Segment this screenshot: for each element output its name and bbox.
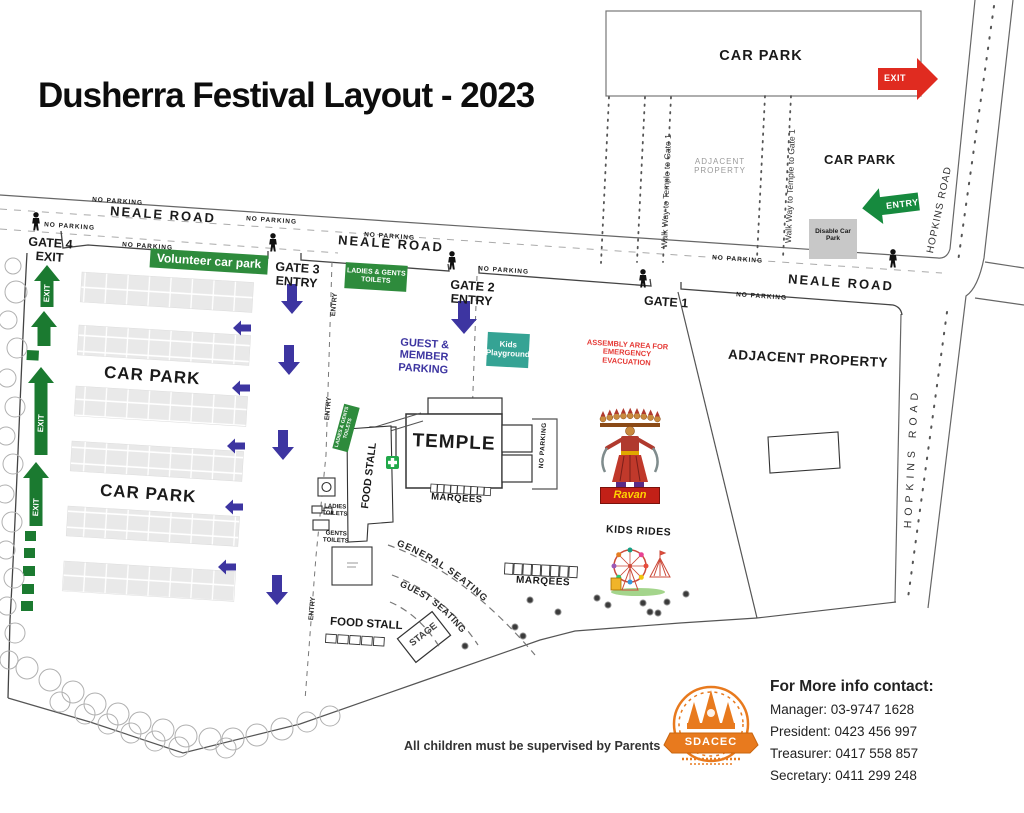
contact-heading: For More info contact:	[770, 678, 934, 695]
carpark-rows	[62, 272, 254, 601]
sdacec-logo-text: SDACEC	[676, 736, 746, 748]
kids-playground-box: Kids Playground	[486, 332, 530, 368]
contact-manager: Manager: 03-9747 1628	[770, 702, 914, 717]
exit-arrow-label: EXIT	[884, 73, 906, 83]
exit-arrows-green	[21, 265, 60, 611]
gate1-label: GATE 1	[644, 293, 689, 310]
children-notice: All children must be supervised by Paren…	[404, 739, 660, 753]
contact-president: President: 0423 456 997	[770, 724, 917, 739]
exit-arrow3-label: EXIT	[37, 414, 47, 432]
ravan-illustration	[600, 408, 660, 487]
gate4-label: GATE 4 EXIT	[19, 234, 81, 266]
festival-layout-map: GENERAL SEATING GUEST SEATING	[0, 0, 1024, 813]
temple-label: TEMPLE	[408, 430, 501, 455]
foodstall-row	[325, 634, 384, 646]
gate2-label: GATE 2 ENTRY	[442, 277, 502, 309]
top-carpark-label-2: CAR PARK	[824, 153, 896, 168]
adjacent-property-gray-label: ADJACENT PROPERTY	[688, 158, 752, 176]
exit-arrow4-label: EXIT	[32, 498, 42, 516]
page-title: Dusherra Festival Layout - 2023	[38, 76, 534, 115]
ravan-label: Ravan	[613, 489, 646, 501]
walkway-dotted-lines	[601, 96, 791, 263]
svg-text:GENERAL SEATING: GENERAL SEATING	[395, 538, 490, 604]
small-trees-dots	[462, 591, 689, 649]
gents-toilets-label: GENTS TOILETS	[316, 530, 357, 546]
exit-arrow1-label: EXIT	[43, 284, 53, 302]
contact-secretary: Secretary: 0411 299 248	[770, 768, 917, 783]
guest-member-parking-label: GUEST & MEMBER PARKING	[377, 335, 471, 377]
ravan-banner: Ravan	[600, 487, 660, 504]
general-seating-label: GENERAL SEATING	[395, 538, 490, 604]
ladies-gents-toilets-banner: LADIES & GENTS TOILETS	[344, 262, 407, 292]
top-carpark-label: CAR PARK	[706, 48, 816, 64]
kids-rides-illustration	[611, 548, 670, 597]
ladies-toilets-label: LADIES TOILETS	[318, 503, 353, 518]
sdacec-logo	[664, 687, 758, 764]
first-aid-icon	[386, 456, 399, 469]
disable-carpark-label: Disable Car Park	[811, 228, 855, 243]
adjacent-property-building	[768, 432, 840, 473]
contact-treasurer: Treasurer: 0417 558 857	[770, 746, 918, 761]
gate3-label: GATE 3 ENTRY	[267, 259, 327, 291]
